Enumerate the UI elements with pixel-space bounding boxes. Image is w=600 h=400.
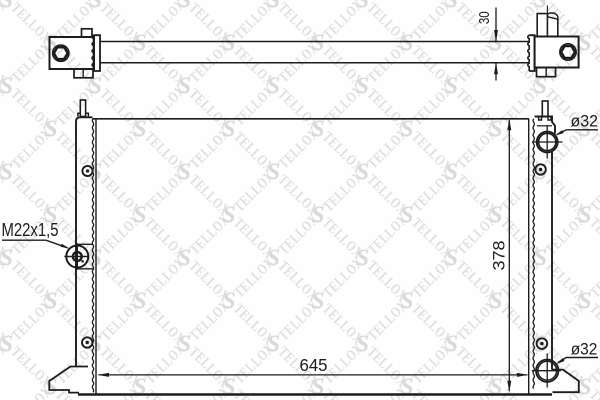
svg-text:30: 30 [477,11,493,24]
svg-text:M22x1,5: M22x1,5 [2,219,59,240]
svg-text:378: 378 [490,241,509,271]
svg-text:645: 645 [300,355,328,375]
svg-text:ø32: ø32 [571,341,598,359]
svg-text:ø32: ø32 [571,111,599,130]
